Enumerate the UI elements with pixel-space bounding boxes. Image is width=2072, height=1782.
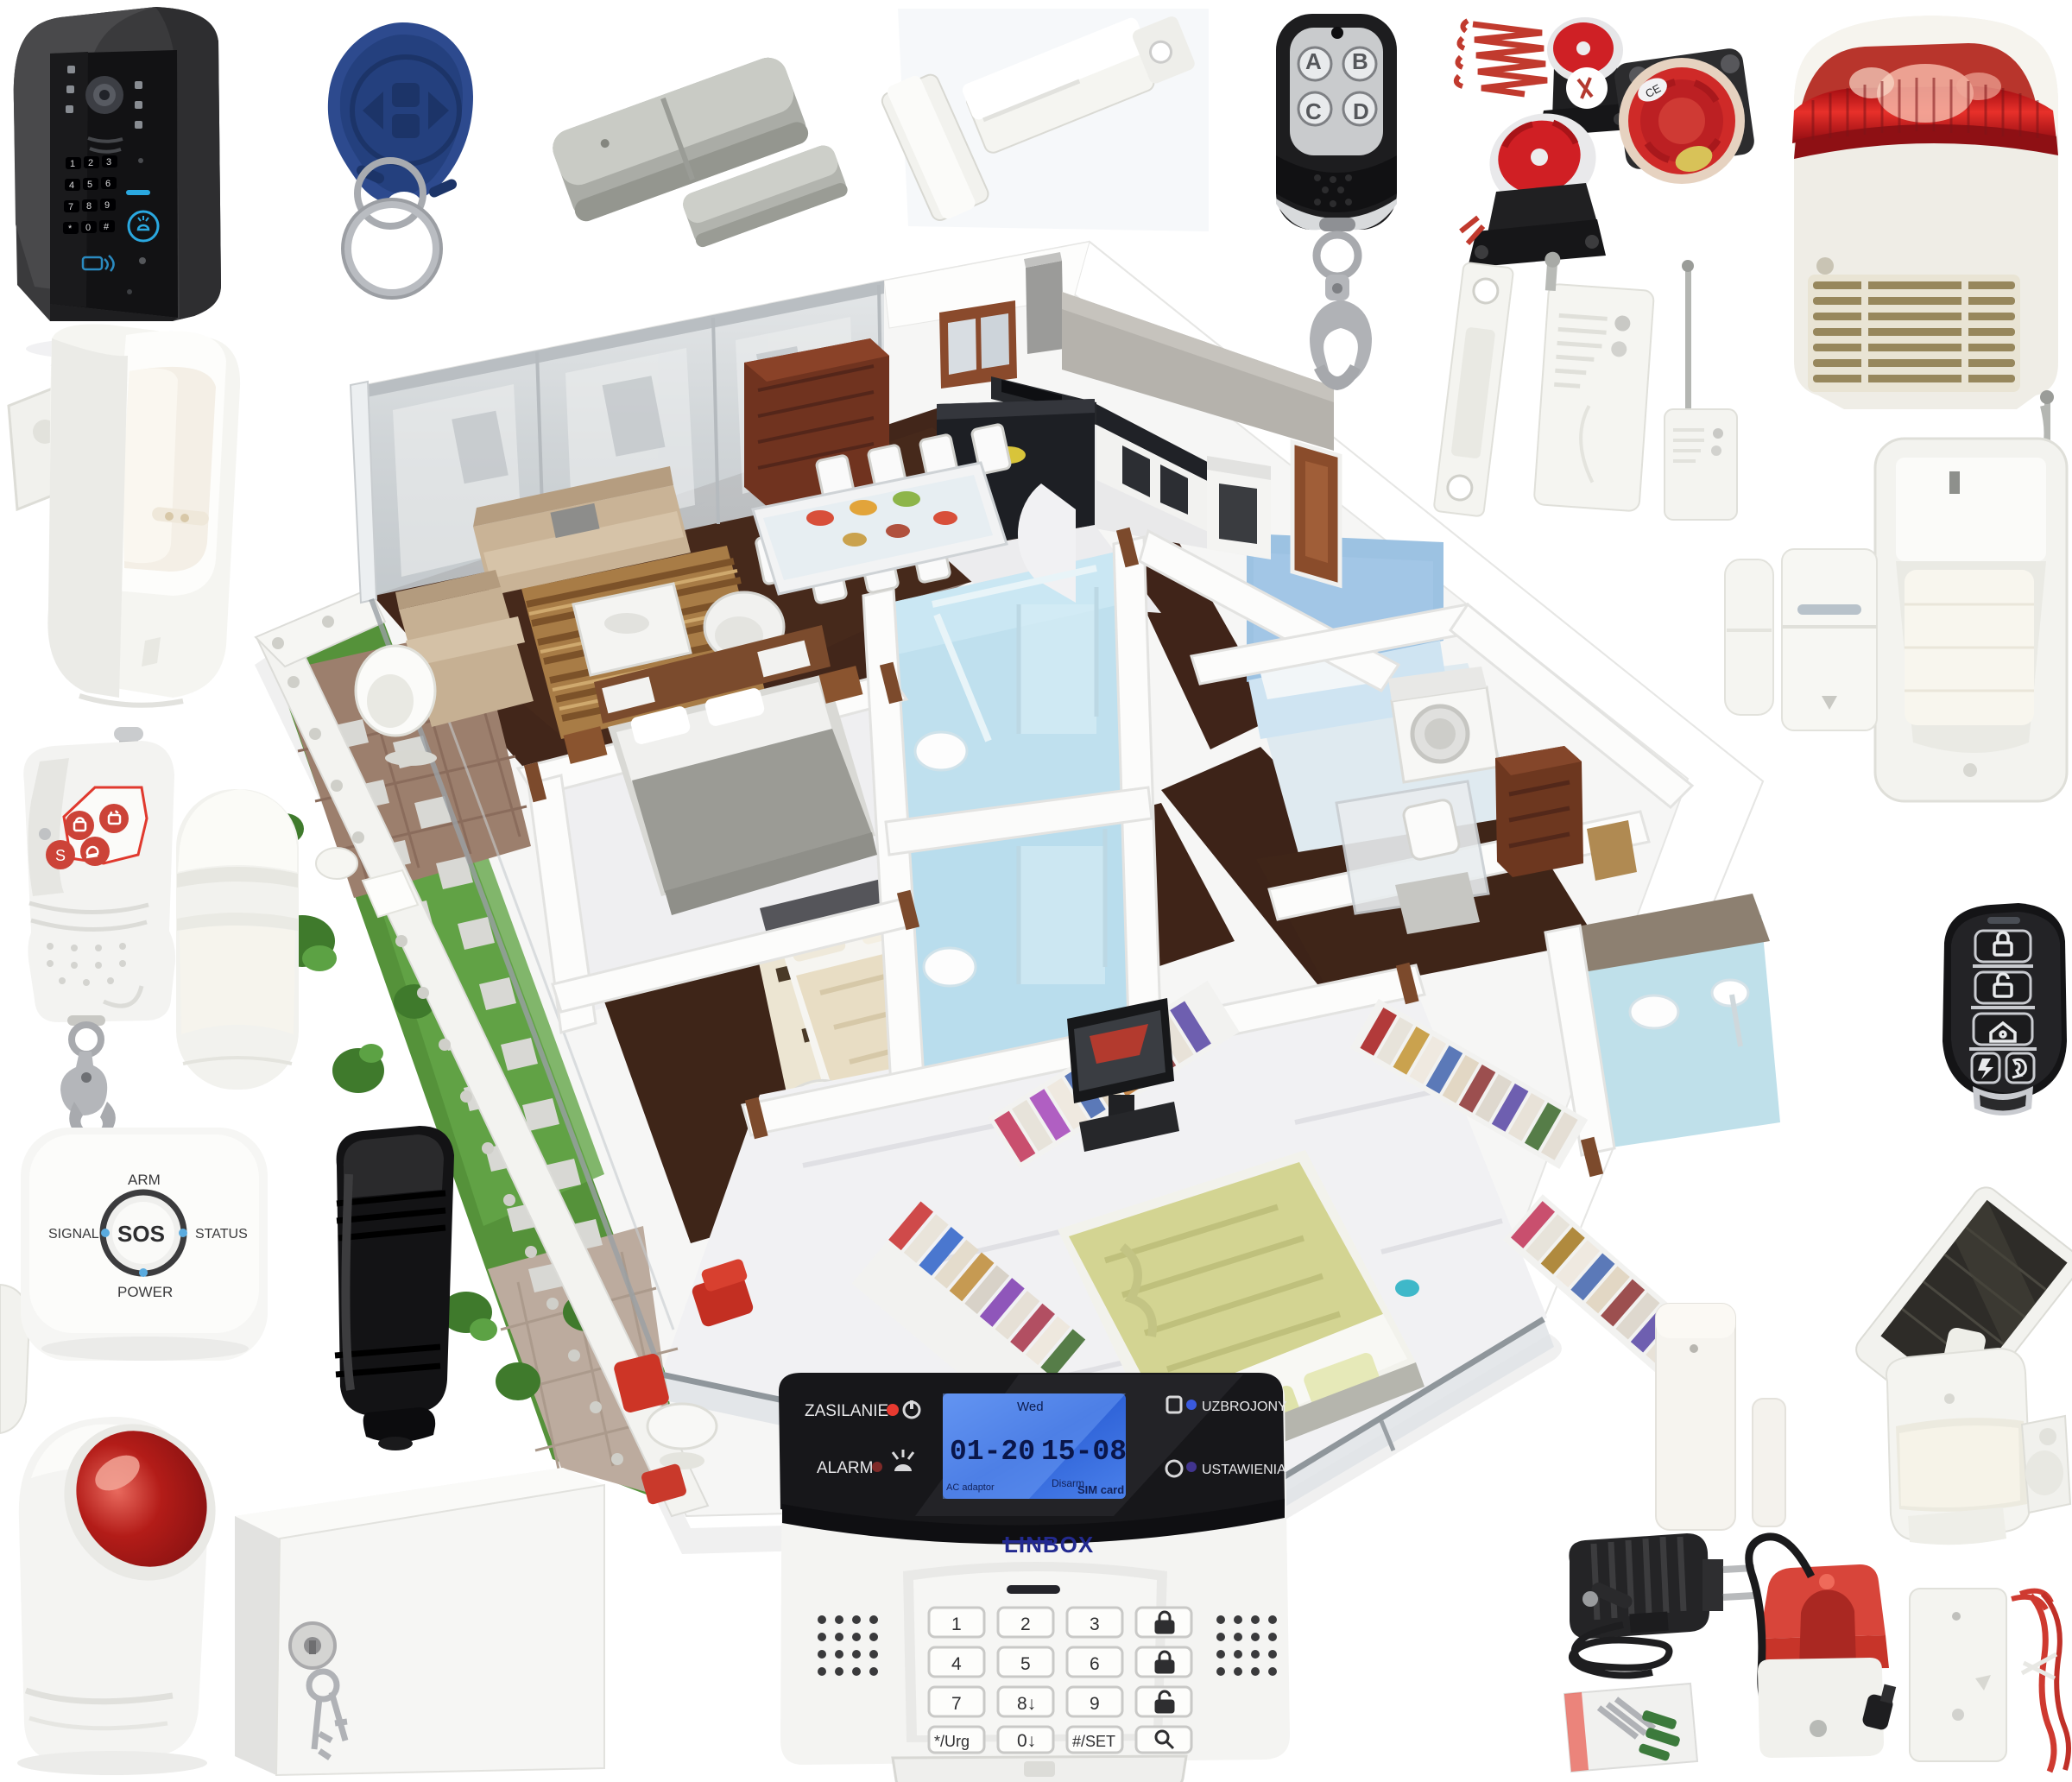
svg-text:*: * — [68, 224, 73, 234]
svg-text:5: 5 — [87, 180, 92, 190]
svg-text:SIM card: SIM card — [1077, 1483, 1124, 1496]
svg-text:4: 4 — [69, 180, 74, 191]
svg-text:4: 4 — [951, 1654, 962, 1674]
svg-text:STATUS: STATUS — [195, 1227, 248, 1242]
svg-text:1: 1 — [70, 159, 75, 169]
svg-text:UZBROJONY: UZBROJONY — [1202, 1400, 1287, 1414]
svg-text:7: 7 — [951, 1694, 962, 1714]
svg-text:D: D — [1353, 98, 1369, 124]
svg-text:1: 1 — [951, 1615, 962, 1634]
svg-text:Wed: Wed — [1017, 1400, 1044, 1414]
svg-text:15-08: 15-08 — [1041, 1436, 1127, 1468]
svg-text:ZASILANIE: ZASILANIE — [805, 1402, 888, 1420]
svg-text:LINBOX: LINBOX — [1004, 1532, 1094, 1558]
svg-text:A: A — [1305, 48, 1322, 74]
svg-text:5: 5 — [1020, 1654, 1031, 1674]
svg-text:B: B — [1352, 48, 1368, 74]
svg-text:9: 9 — [104, 200, 110, 211]
svg-text:6: 6 — [105, 179, 111, 189]
svg-text:0: 0 — [85, 223, 91, 233]
svg-text:9: 9 — [1090, 1694, 1100, 1714]
svg-text:USTAWIENIA: USTAWIENIA — [1202, 1463, 1286, 1477]
svg-text:ARM: ARM — [128, 1172, 161, 1188]
svg-text:ALARM: ALARM — [817, 1459, 873, 1477]
svg-text:01-20: 01-20 — [950, 1436, 1035, 1468]
svg-text:S: S — [55, 847, 66, 864]
svg-text:*/Urg: */Urg — [934, 1733, 970, 1750]
svg-text:2: 2 — [88, 158, 93, 168]
svg-text:3: 3 — [1090, 1615, 1100, 1634]
svg-text:POWER: POWER — [117, 1284, 173, 1300]
svg-text:SOS: SOS — [117, 1221, 165, 1247]
svg-text:7: 7 — [68, 202, 73, 212]
svg-text:C: C — [1305, 98, 1322, 124]
svg-text:2: 2 — [1020, 1615, 1031, 1634]
svg-text:0↓: 0↓ — [1017, 1731, 1036, 1751]
svg-text:#/SET: #/SET — [1072, 1733, 1115, 1750]
svg-text:8: 8 — [86, 201, 92, 212]
svg-text:3: 3 — [106, 157, 111, 167]
svg-text:6: 6 — [1090, 1654, 1100, 1674]
svg-text:8↓: 8↓ — [1017, 1694, 1036, 1714]
svg-text:SIGNAL: SIGNAL — [48, 1227, 99, 1242]
svg-text:#: # — [104, 222, 110, 232]
svg-text:AC adaptor: AC adaptor — [946, 1482, 995, 1493]
